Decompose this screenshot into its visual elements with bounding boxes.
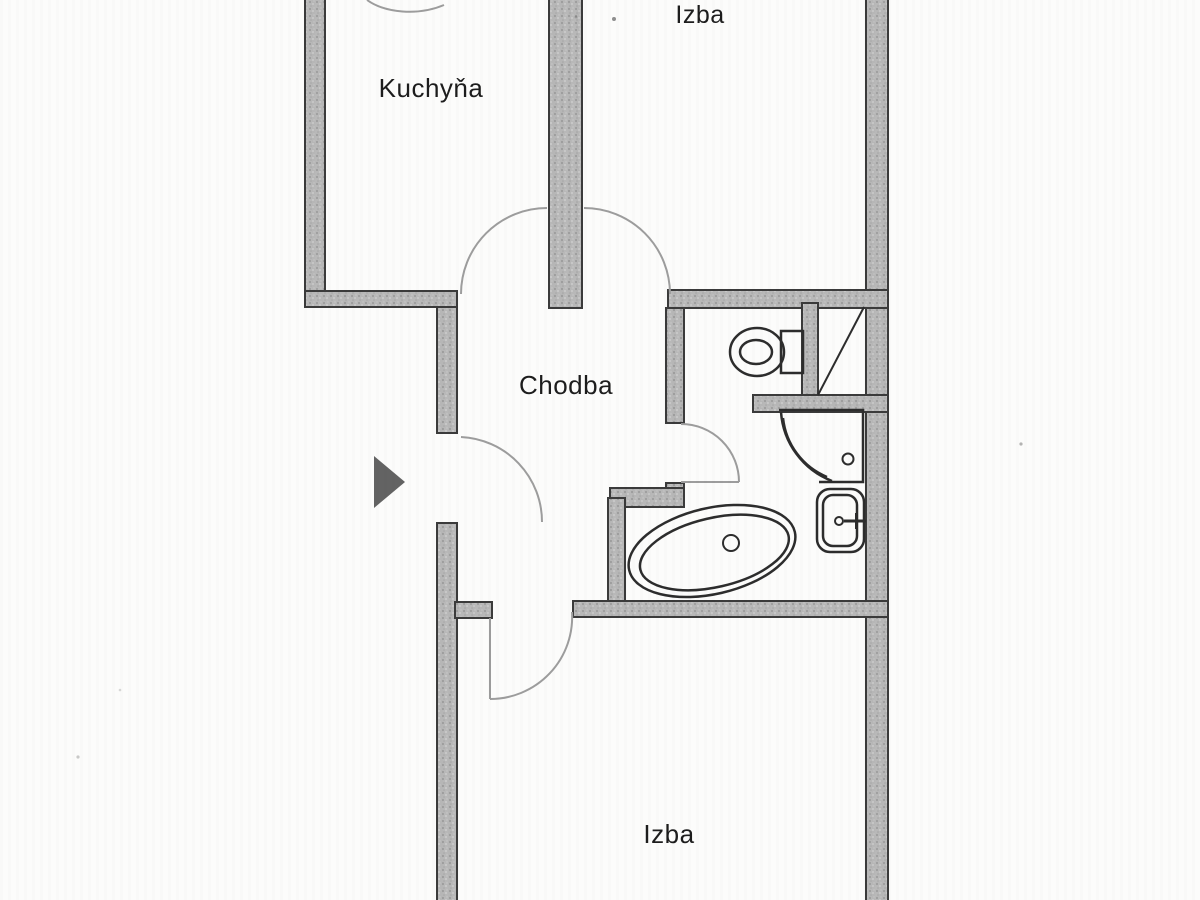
bathtub-drain <box>723 535 739 551</box>
wall-hallway-left-upper <box>437 291 457 433</box>
wall-left-outer-upper <box>305 0 325 307</box>
wall-left-outer-lower <box>437 523 457 900</box>
room-label-room-bottom: Izba <box>643 821 694 847</box>
walls <box>305 0 888 900</box>
room-label-kitchen: Kuchyňa <box>379 75 484 101</box>
wall-wc-left <box>666 308 684 423</box>
room-label-room-top: Izba <box>675 3 724 28</box>
room-bottom-door-swing-arc <box>490 612 572 699</box>
shower-curved-front-inner <box>783 418 827 477</box>
toilet <box>730 328 803 376</box>
room-top-door-swing-arc <box>584 208 670 294</box>
wall-bath-bottom <box>573 601 888 617</box>
cropped-top-door-swing-arc <box>367 0 444 12</box>
washbasin <box>817 489 866 552</box>
washbasin-tap-knob <box>835 517 843 525</box>
wall-kitchen-room-divider <box>549 0 582 308</box>
bathtub <box>620 490 805 612</box>
shower-drain <box>843 454 854 465</box>
shaft-diagonal-line <box>818 307 864 395</box>
wall-room-top-bottom <box>668 290 888 308</box>
corner-shower <box>779 410 863 482</box>
entrance-door-swing-arc <box>461 437 542 522</box>
toilet-bowl-inner <box>740 340 772 364</box>
floor-plan-page: Kuchyňa Izba Chodba Izba <box>0 0 1200 900</box>
wall-wc-shaft-divider <box>802 303 818 398</box>
wall-kitchen-bottom <box>305 291 457 307</box>
shower-curved-front-outer <box>781 412 832 481</box>
bathtub-inner-rim <box>633 502 797 603</box>
wall-right-outer <box>866 0 888 900</box>
entrance-arrow-icon <box>374 456 405 508</box>
kitchen-door-swing-arc <box>461 208 547 294</box>
wall-room-bottom-stub <box>455 602 492 618</box>
bathroom-door-swing-arc <box>681 424 739 482</box>
floor-plan-drawing <box>0 0 1200 900</box>
room-label-hallway: Chodba <box>519 372 613 398</box>
wall-bath-left-vertical <box>608 498 625 610</box>
toilet-bowl-outer <box>730 328 784 376</box>
